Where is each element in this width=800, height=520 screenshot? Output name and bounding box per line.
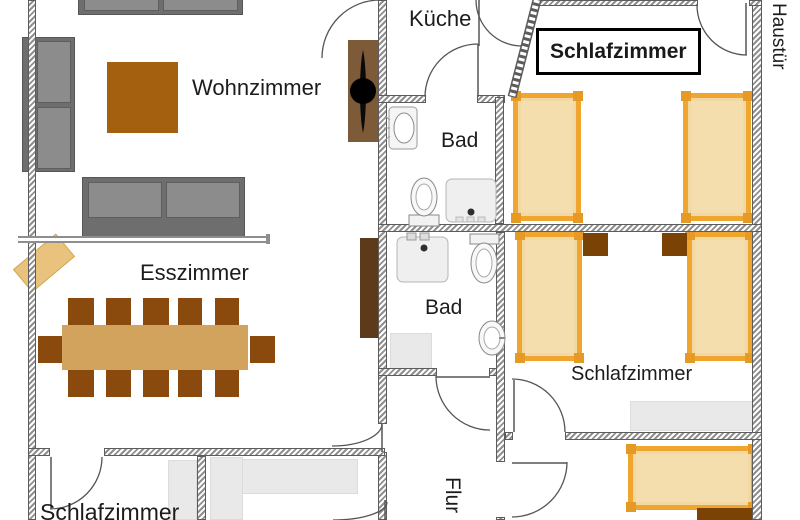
sofa-bottom bbox=[82, 177, 245, 237]
label-flur: Flur bbox=[440, 477, 464, 513]
label-schlafzimmer-bottom-left: Schlafzimmer bbox=[40, 499, 179, 520]
label-haustuer: Haustür bbox=[767, 3, 789, 70]
wardrobe-gray bbox=[630, 401, 753, 431]
dining-chair bbox=[143, 370, 169, 397]
label-esszimmer: Esszimmer bbox=[140, 260, 249, 286]
door-arc-bottom-right-room bbox=[512, 462, 567, 517]
door-arc-esszimmer-flur bbox=[332, 424, 382, 446]
wall-bottom-left-a bbox=[28, 448, 50, 456]
dining-chair bbox=[106, 298, 131, 325]
nightstand bbox=[662, 233, 687, 256]
wall-divider-y224 bbox=[378, 224, 762, 232]
wall-bad1-top-left bbox=[378, 95, 426, 103]
wall-bad-right bbox=[495, 97, 504, 224]
shower-upper bbox=[446, 179, 496, 222]
dining-chair bbox=[143, 298, 169, 325]
wall-outer-right bbox=[752, 0, 762, 520]
door-arc-schlafzimmer-mid bbox=[512, 379, 565, 432]
toilet-upper bbox=[409, 178, 439, 226]
label-schlafzimmer-mid: Schlafzimmer bbox=[571, 363, 692, 386]
label-schlafzimmer-top: Schlafzimmer bbox=[536, 28, 701, 75]
sink-upper bbox=[384, 107, 417, 149]
wardrobe-dark bbox=[360, 238, 379, 338]
wall-bottom-vertical bbox=[197, 456, 206, 520]
wall-mid-vertical-lower bbox=[378, 452, 387, 520]
toilet-lower bbox=[470, 234, 499, 283]
label-bad-lower: Bad bbox=[425, 296, 462, 320]
wall-diagonal bbox=[512, 0, 537, 97]
wall-top-a bbox=[537, 0, 698, 6]
bed bbox=[687, 232, 753, 361]
shower-lower bbox=[397, 233, 448, 282]
wall-outer-left bbox=[28, 0, 36, 520]
dining-chair bbox=[68, 370, 94, 397]
bed bbox=[683, 93, 751, 221]
wall-flur-right bbox=[496, 232, 505, 462]
room-divider-line bbox=[18, 236, 270, 243]
bed bbox=[628, 446, 756, 510]
wall-bad2-bottom-left bbox=[378, 368, 437, 376]
counter-horizontal bbox=[242, 459, 358, 494]
door-arc-haustuer bbox=[697, 5, 747, 55]
door-arc-bad-lower bbox=[436, 376, 490, 430]
dining-chair bbox=[38, 336, 62, 363]
nightstand bbox=[583, 233, 608, 256]
bed bbox=[513, 93, 581, 221]
dining-table bbox=[62, 325, 248, 370]
door-arc-kueche bbox=[476, 0, 522, 46]
wall-bedroom-divider-stub bbox=[505, 432, 513, 440]
dining-chair bbox=[178, 370, 202, 397]
wall-top-b bbox=[749, 0, 762, 6]
label-wohnzimmer: Wohnzimmer bbox=[192, 75, 321, 101]
dining-chair bbox=[68, 298, 94, 325]
bed bbox=[517, 232, 582, 361]
door-arc-bad-upper bbox=[425, 44, 478, 97]
sofa-top bbox=[78, 0, 243, 15]
dining-chair bbox=[215, 370, 239, 397]
label-bad-upper: Bad bbox=[441, 129, 478, 153]
dining-chair bbox=[215, 298, 239, 325]
wall-bedroom-divider bbox=[565, 432, 762, 440]
coffee-table bbox=[107, 62, 178, 133]
stove bbox=[348, 40, 378, 142]
bath-mat bbox=[390, 333, 432, 372]
nightstand bbox=[697, 508, 753, 520]
dining-chair bbox=[250, 336, 275, 363]
label-kueche: Küche bbox=[409, 6, 471, 32]
wall-mid-vertical-upper bbox=[378, 0, 387, 424]
dining-chair bbox=[106, 370, 131, 397]
counter-vertical bbox=[210, 457, 243, 520]
dining-chair bbox=[178, 298, 202, 325]
room-divider-end-tick bbox=[266, 234, 270, 244]
wall-bottom-left-b bbox=[104, 448, 385, 456]
floor-plan: Wohnzimmer Küche Schlafzimmer Haustür Ba… bbox=[0, 0, 800, 520]
